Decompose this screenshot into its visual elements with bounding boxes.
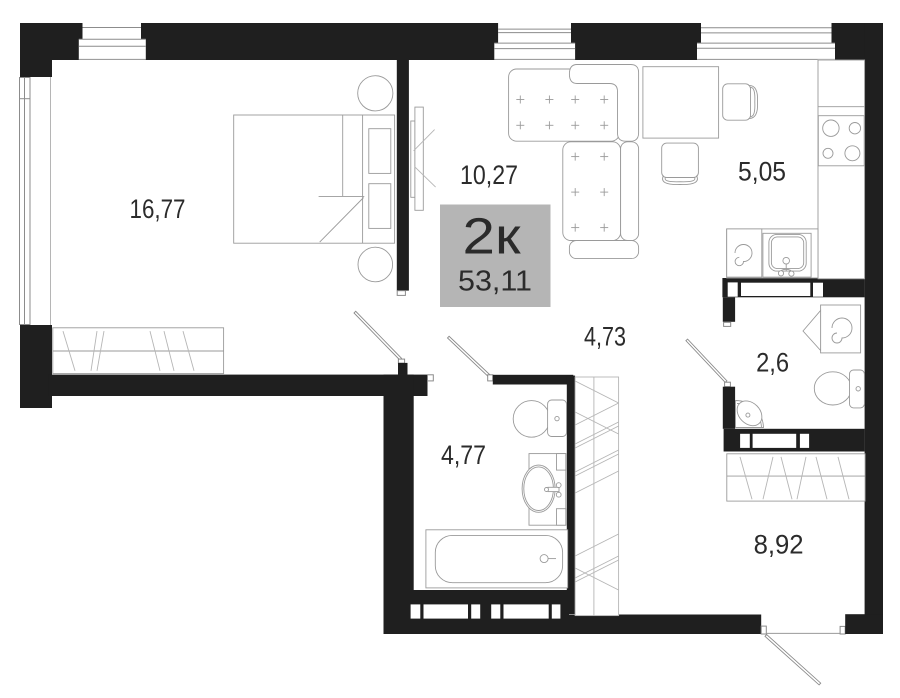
svg-text:4,77: 4,77	[441, 440, 486, 470]
svg-text:8,92: 8,92	[754, 530, 804, 560]
svg-text:4,73: 4,73	[584, 322, 626, 352]
svg-text:16,77: 16,77	[130, 194, 186, 224]
svg-text:10,27: 10,27	[460, 160, 518, 190]
svg-text:5,05: 5,05	[738, 156, 786, 186]
svg-text:2,6: 2,6	[756, 347, 789, 377]
svg-text:2к: 2к	[463, 208, 522, 265]
svg-text:53,11: 53,11	[458, 266, 532, 298]
